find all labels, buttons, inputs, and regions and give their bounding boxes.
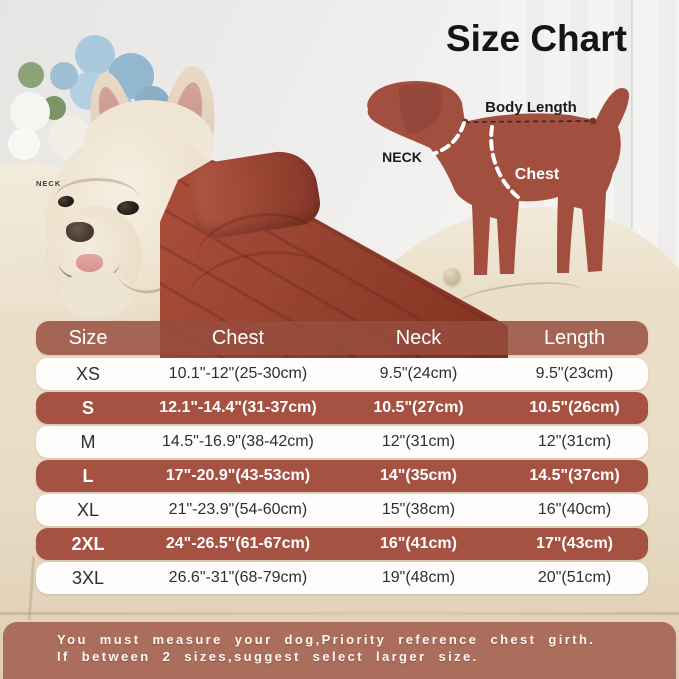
table-cell-neck: 12"(31cm) xyxy=(336,433,501,451)
size-chart-image: NECK Size Chart Body Length NECK Chest S… xyxy=(0,0,679,679)
table-cell-length: 14.5"(37cm) xyxy=(501,467,648,485)
table-cell-neck: 14"(35cm) xyxy=(336,467,501,485)
measurement-note-bar: You must measure your dog,Priority refer… xyxy=(3,622,676,679)
table-cell-size: L xyxy=(36,466,140,487)
table-cell-size: 2XL xyxy=(36,534,140,555)
table-cell-neck: 19"(48cm) xyxy=(336,569,501,587)
white-flower xyxy=(8,128,40,160)
table-cell-neck: 10.5"(27cm) xyxy=(336,399,501,417)
table-header-row: Size Chest Neck Length xyxy=(36,321,648,355)
table-cell-size: XS xyxy=(36,364,140,385)
couch-seam xyxy=(0,612,679,615)
table-cell-length: 20"(51cm) xyxy=(501,569,648,587)
note-line-1: You must measure your dog,Priority refer… xyxy=(57,631,676,648)
size-table: Size Chest Neck Length XS 10.1"-12"(25-3… xyxy=(36,321,648,596)
dog-tongue xyxy=(76,254,103,272)
column-header-length: Length xyxy=(501,327,648,350)
dog-measurement-diagram: Body Length NECK Chest xyxy=(355,75,679,315)
table-cell-neck: 16"(41cm) xyxy=(336,535,501,553)
table-cell-length: 10.5"(26cm) xyxy=(501,399,648,417)
table-row: 3XL 26.6"-31"(68-79cm) 19"(48cm) 20"(51c… xyxy=(36,562,648,594)
table-cell-size: M xyxy=(36,432,140,453)
dog-nose xyxy=(66,222,94,242)
neck-label: NECK xyxy=(382,149,422,165)
table-row: L 17"-20.9"(43-53cm) 14"(35cm) 14.5"(37c… xyxy=(36,460,648,492)
table-cell-length: 17"(43cm) xyxy=(501,535,648,553)
table-cell-neck: 15"(38cm) xyxy=(336,501,501,519)
leaves xyxy=(18,62,44,88)
table-cell-length: 9.5"(23cm) xyxy=(501,365,648,383)
blue-flower xyxy=(50,62,78,90)
table-cell-chest: 14.5"-16.9"(38-42cm) xyxy=(140,433,336,451)
table-cell-chest: 12.1"-14.4"(31-37cm) xyxy=(140,399,336,417)
table-cell-chest: 17"-20.9"(43-53cm) xyxy=(140,467,336,485)
photo-neck-label: NECK xyxy=(36,179,61,188)
table-row: 2XL 24"-26.5"(61-67cm) 16"(41cm) 17"(43c… xyxy=(36,528,648,560)
column-header-chest: Chest xyxy=(140,327,336,350)
table-cell-chest: 24"-26.5"(61-67cm) xyxy=(140,535,336,553)
table-row: XS 10.1"-12"(25-30cm) 9.5"(24cm) 9.5"(23… xyxy=(36,358,648,390)
table-row: M 14.5"-16.9"(38-42cm) 12"(31cm) 12"(31c… xyxy=(36,426,648,458)
body-length-dot-right xyxy=(590,118,597,125)
chest-label: Chest xyxy=(515,166,560,183)
table-cell-neck: 9.5"(24cm) xyxy=(336,365,501,383)
table-cell-length: 12"(31cm) xyxy=(501,433,648,451)
body-length-label: Body Length xyxy=(485,99,577,116)
page-title: Size Chart xyxy=(446,18,627,60)
table-cell-size: 3XL xyxy=(36,568,140,589)
table-cell-length: 16"(40cm) xyxy=(501,501,648,519)
white-flower xyxy=(10,92,50,132)
table-row: XL 21"-23.9"(54-60cm) 15"(38cm) 16"(40cm… xyxy=(36,494,648,526)
column-header-size: Size xyxy=(36,327,140,350)
column-header-neck: Neck xyxy=(336,327,501,350)
table-cell-chest: 10.1"-12"(25-30cm) xyxy=(140,365,336,383)
table-row: S 12.1"-14.4"(31-37cm) 10.5"(27cm) 10.5"… xyxy=(36,392,648,424)
table-cell-chest: 21"-23.9"(54-60cm) xyxy=(140,501,336,519)
table-cell-size: XL xyxy=(36,500,140,521)
table-cell-size: S xyxy=(36,398,140,419)
table-cell-chest: 26.6"-31"(68-79cm) xyxy=(140,569,336,587)
note-line-2: If between 2 sizes,suggest select larger… xyxy=(57,648,676,665)
